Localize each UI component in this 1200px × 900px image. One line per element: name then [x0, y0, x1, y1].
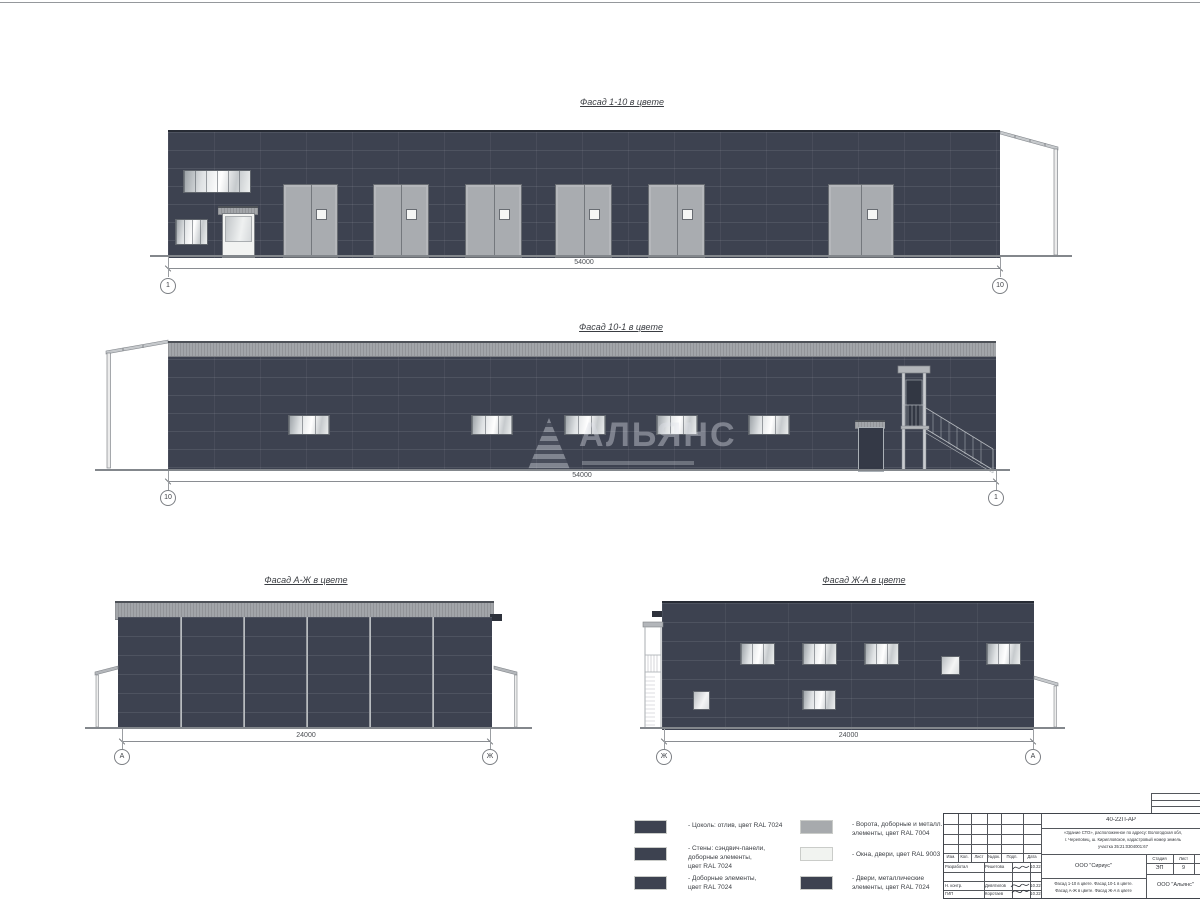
- legend-label: - Стены: сэндвич-панели, доборные элемен…: [688, 844, 765, 871]
- wall-mullion: [369, 617, 371, 728]
- ground-line: [85, 727, 532, 729]
- facade-a-zh-title: Фасад А-Ж в цвете: [264, 575, 347, 585]
- legend-swatch: [800, 820, 833, 834]
- axis-bubble: 1: [988, 490, 1004, 506]
- tb-col-kol: Кол.: [958, 854, 971, 859]
- tb-line: [1146, 874, 1200, 875]
- facade-zh-a-wall: [662, 601, 1034, 730]
- dimension-label: 54000: [168, 472, 996, 479]
- facade-zh-a-title: Фасад Ж-А в цвете: [822, 575, 905, 585]
- window: [471, 415, 513, 435]
- signature: [1010, 880, 1030, 897]
- side-canopy-right: [1032, 670, 1062, 730]
- axis-bubble: Ж: [482, 749, 498, 765]
- exterior-stair: [893, 360, 1003, 475]
- axis-bubble: 10: [160, 490, 176, 506]
- tb-date: 10.22: [1030, 864, 1041, 869]
- ground-line: [95, 469, 1010, 471]
- tb-col-izm: Изм.: [944, 854, 958, 859]
- ground-line: [150, 255, 1072, 257]
- wall-mullion: [180, 617, 182, 728]
- tb-line: [944, 872, 1041, 873]
- window: [288, 415, 330, 435]
- tb-doc-code: 40-22П-АР: [1041, 817, 1200, 823]
- dimension-line: 54000: [168, 481, 996, 482]
- dimension-line: 54000: [168, 268, 1000, 269]
- ground-line: [640, 727, 1065, 729]
- axis-bubble: А: [1025, 749, 1041, 765]
- dimension-label: 24000: [122, 732, 490, 739]
- legend-label: - Ворота, доборные и металл. элементы, ц…: [852, 820, 942, 838]
- gate-3: [465, 184, 522, 258]
- tb-role: ГИП: [945, 891, 983, 896]
- window-small: [941, 656, 960, 675]
- tb-col-podp: Подп.: [1001, 854, 1023, 859]
- window-small: [693, 691, 710, 710]
- axis-bubble: Ж: [656, 749, 672, 765]
- window: [986, 643, 1021, 665]
- wicket-door: [858, 427, 884, 472]
- tb-name: Решетова: [985, 864, 1011, 869]
- entry-door-glazing: [225, 216, 252, 242]
- legend-label: - Доборные элементы, цвет RAL 7024: [688, 874, 756, 892]
- tb-line: [944, 834, 1041, 835]
- tb-date: 10.22: [1030, 883, 1041, 888]
- legend-swatch: [634, 876, 667, 890]
- tb-line: [944, 844, 1041, 845]
- gate-leaf-split: [584, 185, 585, 257]
- gate-6: [828, 184, 894, 258]
- axis-leader: [1033, 729, 1034, 749]
- wall-mullion: [243, 617, 245, 728]
- watermark-text: АЛЬЯНС: [579, 416, 737, 455]
- axis-bubble: 1: [160, 278, 176, 294]
- legend-swatch: [800, 847, 833, 861]
- tb-date: 10.22: [1030, 891, 1041, 896]
- tb-line: [1151, 806, 1200, 807]
- tb-sheet-label: Лист: [1173, 856, 1194, 861]
- tb-line: [1041, 878, 1146, 879]
- gate-leaf-split: [311, 185, 312, 257]
- axis-leader: [664, 729, 665, 749]
- side-canopy-right: [492, 660, 522, 730]
- facade-a-zh-wall: [118, 617, 492, 728]
- gate-5: [648, 184, 705, 258]
- dimension-label: 24000: [664, 732, 1033, 739]
- tb-line: [1146, 863, 1200, 864]
- tb-stage-value: ЭП: [1146, 865, 1173, 871]
- tb-line: [1041, 828, 1200, 829]
- legend-swatch: [800, 876, 833, 890]
- wall-mullion: [306, 617, 308, 728]
- sheet-top-edge: [0, 2, 1200, 3]
- axis-leader: [490, 729, 491, 749]
- axis-bubble: А: [114, 749, 130, 765]
- gate-window: [406, 209, 417, 220]
- tb-sheet-number: 9: [1173, 865, 1194, 871]
- window: [748, 415, 790, 435]
- gate-leaf-split: [861, 185, 862, 257]
- window: [802, 690, 836, 710]
- axis-leader: [996, 471, 997, 490]
- tb-sheet-content: Фасад 1-10 в цвете. Фасад 10-1 в цвете. …: [1042, 881, 1145, 894]
- tb-col-list: Лист: [971, 854, 987, 859]
- window: [740, 643, 775, 665]
- legend-label: - Двери, металлические элементы, цвет RA…: [852, 874, 929, 892]
- tb-col-data: Дата: [1023, 854, 1041, 859]
- strip-window: [183, 170, 251, 193]
- gate-1: [283, 184, 338, 258]
- tb-line: [1151, 800, 1200, 801]
- window: [802, 643, 837, 665]
- axis-bubble: 10: [992, 278, 1008, 294]
- axis-leader: [168, 257, 169, 277]
- title-block: Изм. Кол. Лист №док. Подп. Дата Разработ…: [943, 813, 1200, 899]
- sheet: { "facades": [ {"title": "Фасад 1-10 в ц…: [0, 0, 1200, 900]
- dimension-line: 24000: [122, 741, 490, 742]
- legend-swatch: [634, 820, 667, 834]
- facade-1-10-title: Фасад 1-10 в цвете: [580, 97, 664, 107]
- side-canopy-left: [103, 338, 173, 472]
- gate-window: [499, 209, 510, 220]
- gate-window: [589, 209, 600, 220]
- office-window: [175, 219, 208, 245]
- tb-col-ndok: №док.: [987, 854, 1001, 859]
- tb-role: Разработал: [945, 864, 983, 869]
- dimension-label: 54000: [168, 259, 1000, 266]
- legend-label: - Цоколь: отлив, цвет RAL 7024: [688, 821, 782, 830]
- entry-door: [222, 213, 255, 258]
- tb-project-name: «Здание СТО», расположенное по адресу: В…: [1043, 830, 1200, 851]
- tb-line: [944, 824, 1041, 825]
- side-canopy-left: [90, 660, 120, 730]
- watermark-caption: [582, 461, 694, 465]
- tb-organization: ООО "Альянс": [1157, 882, 1200, 888]
- tb-line: [1194, 854, 1195, 874]
- wall-mullion: [432, 617, 434, 728]
- gate-leaf-split: [401, 185, 402, 257]
- gate-leaf-split: [494, 185, 495, 257]
- stair-tower: [638, 615, 666, 730]
- tb-stage-label: Стадия: [1146, 856, 1173, 861]
- gate-leaf-split: [677, 185, 678, 257]
- gate-window: [682, 209, 693, 220]
- side-canopy-right: [1000, 128, 1070, 258]
- tb-customer: ООО "Сириус": [1041, 863, 1146, 869]
- legend-swatch: [634, 847, 667, 861]
- tb-line: [1041, 854, 1200, 855]
- parapet-band: [168, 341, 996, 357]
- legend-label: - Окна, двери, цвет RAL 9003: [852, 850, 940, 859]
- gate-window: [316, 209, 327, 220]
- gate-4: [555, 184, 612, 258]
- gate-2: [373, 184, 429, 258]
- gate-window: [867, 209, 878, 220]
- axis-leader: [1000, 257, 1001, 277]
- facade-10-1-title: Фасад 10-1 в цвете: [579, 322, 663, 332]
- tb-name: Коротаев: [985, 891, 1011, 896]
- tb-role: Н. контр.: [945, 883, 983, 888]
- dimension-line: 24000: [664, 741, 1033, 742]
- axis-leader: [122, 729, 123, 749]
- axis-leader: [168, 471, 169, 490]
- signature: [1012, 863, 1030, 872]
- tb-line: [1151, 793, 1152, 813]
- tb-line: [1151, 793, 1200, 794]
- window: [864, 643, 899, 665]
- tb-name: Девятилов: [985, 883, 1011, 888]
